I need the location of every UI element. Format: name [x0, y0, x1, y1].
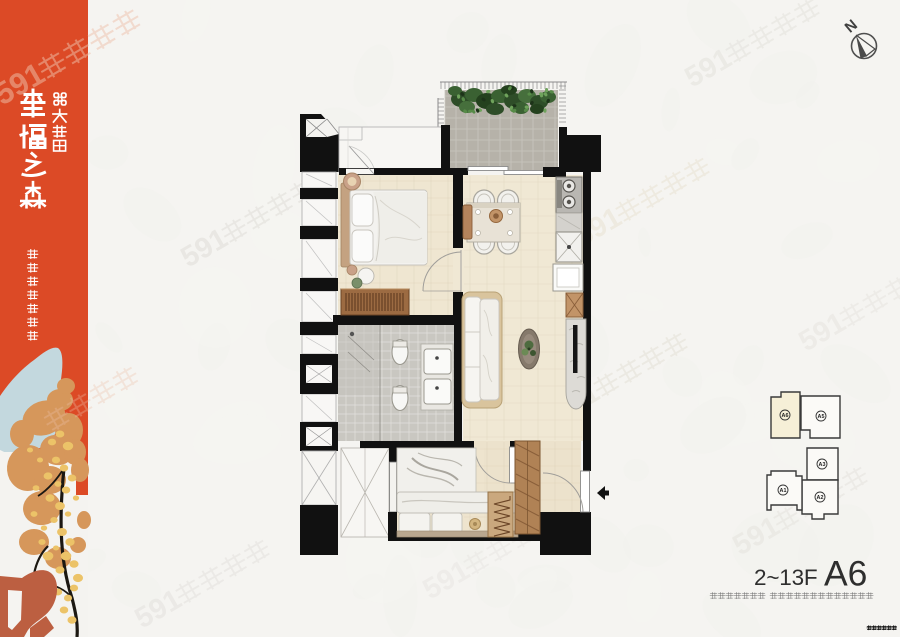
- svg-text:A6: A6: [824, 554, 867, 594]
- svg-text:A1: A1: [780, 488, 787, 494]
- svg-text:A3: A3: [819, 462, 826, 468]
- svg-text:A6: A6: [782, 413, 789, 419]
- svg-text:A2: A2: [817, 495, 824, 501]
- svg-text:2~13F: 2~13F: [754, 565, 817, 590]
- svg-text:A5: A5: [818, 414, 825, 420]
